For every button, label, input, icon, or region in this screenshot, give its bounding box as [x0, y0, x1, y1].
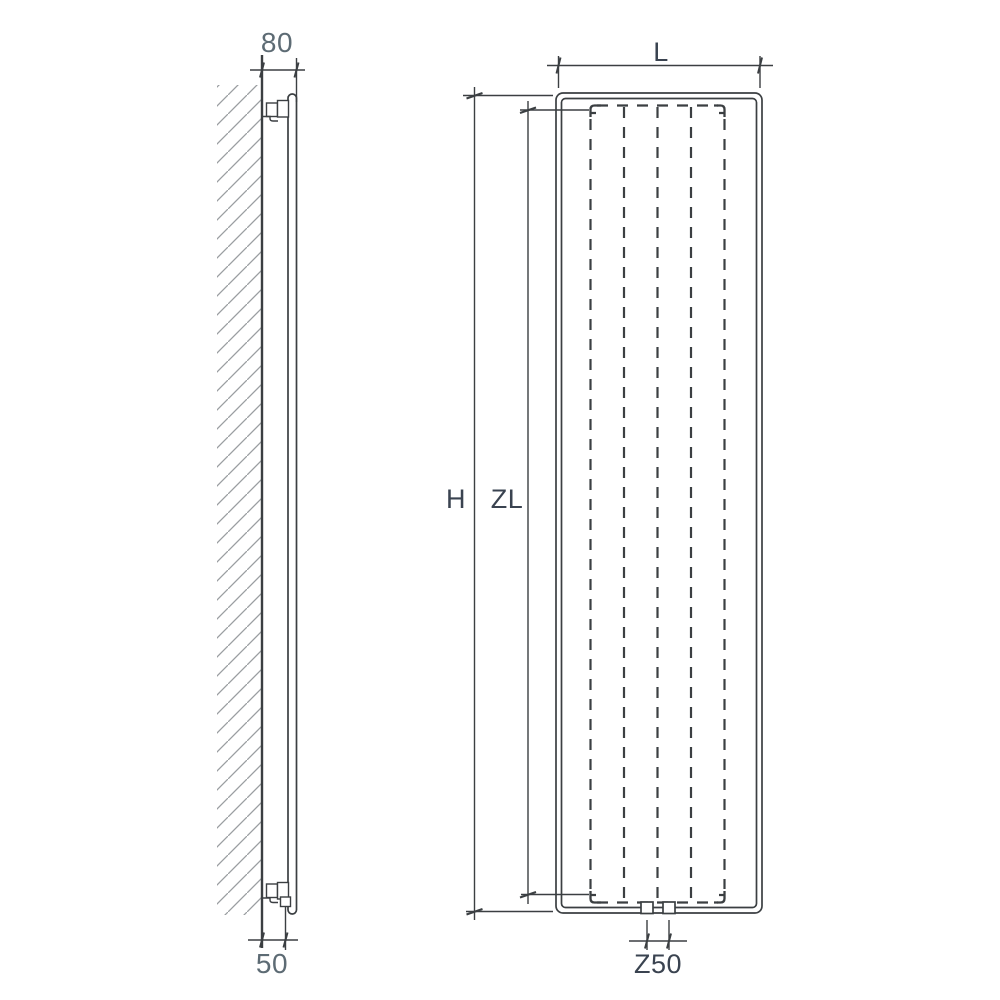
side-view	[217, 55, 305, 950]
height-dimension-label: H	[446, 484, 466, 514]
radiator-technical-drawing: 80 50 L H ZL Z50	[0, 0, 1000, 1000]
pipe-connection-pin	[281, 897, 291, 907]
pipe-offset-dimension-label: 50	[256, 948, 288, 979]
top-bracket	[263, 101, 289, 122]
dimension-connection-Z50	[629, 920, 687, 950]
panel-outer-frame	[556, 93, 762, 913]
pipe-connector-left	[641, 902, 653, 914]
wall-hatching	[217, 85, 262, 915]
technical-drawing-canvas: 80 50 L H ZL Z50	[0, 0, 1000, 1000]
dimension-inner-height-ZL	[520, 101, 589, 904]
panel-side-profile	[288, 94, 297, 914]
depth-dimension-label: 80	[261, 27, 293, 58]
width-dimension-label: L	[653, 37, 669, 67]
internal-channels	[591, 106, 725, 903]
pipe-connector-right	[663, 902, 675, 914]
connection-dimension-label: Z50	[634, 949, 682, 979]
letter-dimension-labels: L H ZL Z50	[446, 37, 682, 979]
inner-height-dimension-label: ZL	[491, 484, 524, 514]
bottom-bracket	[263, 883, 291, 907]
